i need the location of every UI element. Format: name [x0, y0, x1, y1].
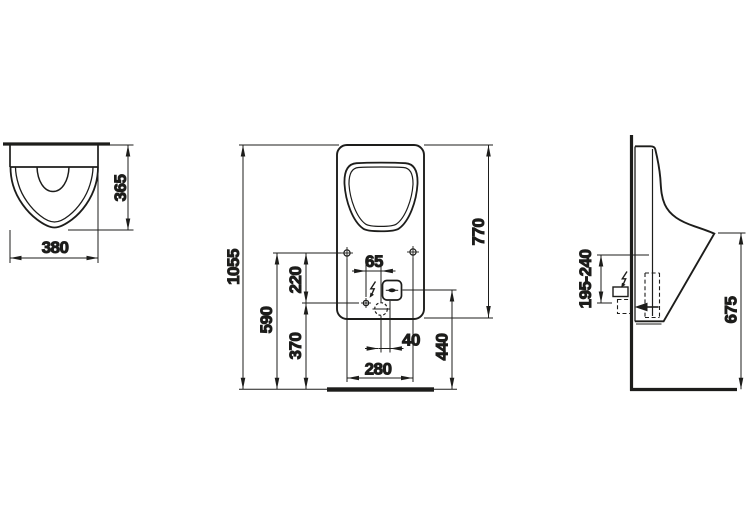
mounting-hole-right-icon	[407, 246, 419, 258]
profile-outline	[635, 146, 715, 321]
bowl-inner-rim	[349, 167, 413, 226]
lightning-bolt-icon	[370, 282, 376, 298]
floor-line	[327, 387, 434, 391]
urinal-body-outline	[10, 144, 98, 167]
depth-dimension-label: 365	[111, 175, 130, 202]
bowl-height-label: 770	[469, 219, 488, 246]
width-dimension-label: 380	[42, 238, 69, 257]
front-view: 1055 590 220 370 770 440 65 40 280	[224, 145, 493, 392]
mount-spacing-label: 280	[365, 360, 392, 379]
hidden-drain-pipe	[618, 273, 660, 318]
mount-height-label: 590	[257, 307, 276, 334]
drain-outlet-icon	[373, 303, 390, 316]
connection-range-label: 195-240	[576, 250, 595, 309]
rim-height-label: 675	[722, 297, 741, 324]
top-view: 365 380	[3, 144, 134, 263]
dimension-lines	[601, 233, 741, 389]
overall-height-label: 1055	[224, 249, 243, 285]
technical-drawing-page: 365 380	[0, 0, 750, 527]
supply-box	[613, 287, 628, 297]
mount-to-inlet-label: 220	[286, 267, 305, 294]
axis-to-sensor-label: 40	[402, 331, 420, 350]
flush-rim-arc	[37, 167, 69, 192]
bowl-outer-rim	[344, 163, 417, 232]
lens-icon	[388, 288, 397, 292]
water-inlet-icon	[361, 298, 371, 308]
side-view: 195-240 675	[576, 135, 746, 391]
lightning-bolt-icon	[621, 272, 627, 288]
bowl-inner-rim	[16, 167, 94, 222]
inlet-height-label: 370	[286, 333, 305, 360]
mounting-hole-left-icon	[341, 247, 353, 259]
flow-arrow-icon	[635, 303, 659, 312]
sensor-window	[383, 281, 402, 301]
extension-lines	[597, 233, 746, 303]
inlet-to-axis-label: 65	[365, 252, 383, 271]
sensor-height-label: 440	[433, 334, 452, 361]
urinal-dimension-drawing: 365 380	[0, 0, 750, 527]
